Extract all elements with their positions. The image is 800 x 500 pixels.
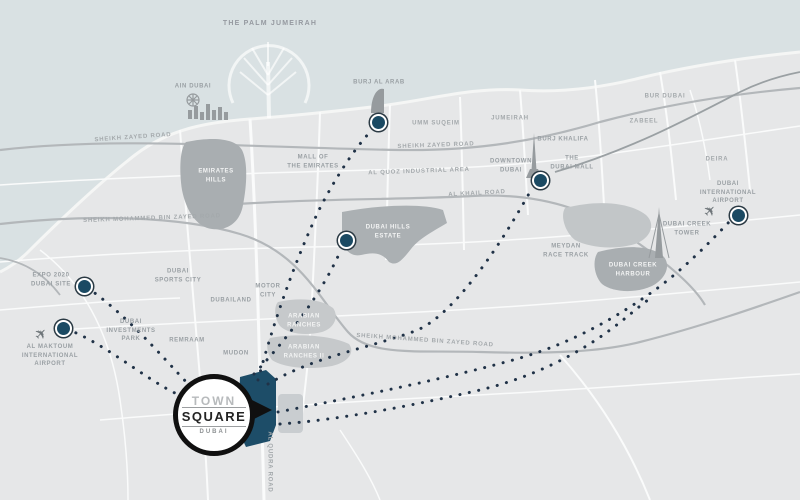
dubai-hills-area [342, 206, 447, 264]
logo-square-text: SQUARE [182, 407, 247, 427]
map-container[interactable]: THE PALM JUMEIRAHAIN DUBAIBURJ AL ARABUM… [0, 0, 800, 500]
marker-burj-al-arab[interactable] [370, 114, 387, 131]
line-to-expo [92, 291, 198, 394]
nad-al-sheba-area [563, 203, 651, 247]
marker-downtown-dubai-mall[interactable] [532, 172, 549, 189]
emirates-hills-area [180, 139, 246, 229]
ts-neighbour-area [278, 394, 303, 433]
logo-dubai-text: DUBAI [200, 429, 229, 435]
map-canvas [0, 0, 800, 500]
arabian-ranches-area [275, 299, 336, 334]
marker-dubai-international-airport[interactable] [730, 207, 747, 224]
arabian-ranches-2-area [267, 335, 351, 368]
marker-expo-2020-site[interactable] [76, 278, 93, 295]
marker-al-maktoum-airport[interactable] [55, 320, 72, 337]
marker-dubai-hills-estate[interactable] [338, 232, 355, 249]
line-to-al-maktoum [74, 332, 192, 400]
logo-town-text: TOWN [192, 395, 236, 407]
town-square-logo[interactable]: TOWN SQUARE DUBAI [173, 374, 255, 456]
ain-dubai-wheel-icon [187, 94, 199, 106]
